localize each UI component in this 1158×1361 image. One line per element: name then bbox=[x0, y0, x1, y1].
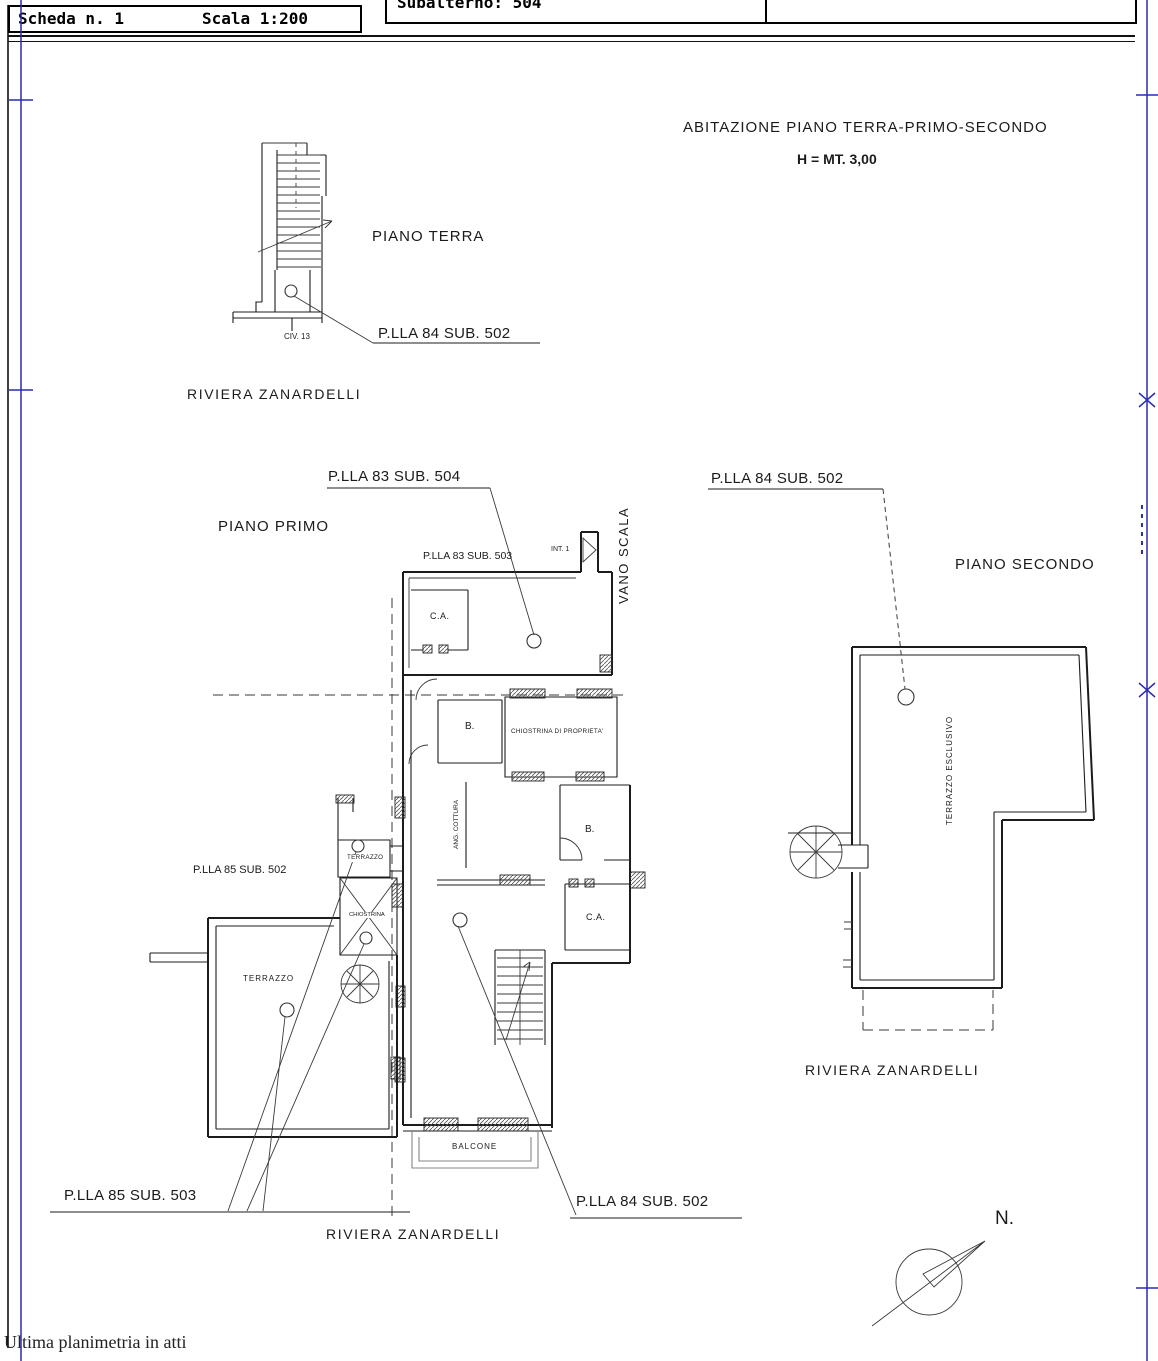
header-subalterno-box: Subalterno: 504 bbox=[385, 0, 767, 24]
parcel-85-503-label: P.LLA 85 SUB. 503 bbox=[64, 1188, 196, 1205]
room-ca-top-label: C.A. bbox=[430, 612, 450, 622]
interior-stair bbox=[495, 950, 545, 1045]
subalterno-label: Subalterno: 504 bbox=[397, 0, 765, 12]
parcel-marker-secondo bbox=[898, 689, 914, 705]
room-chiostrina-label: CHIOSTRINA bbox=[348, 912, 386, 918]
north-label: N. bbox=[995, 1209, 1014, 1230]
height-note: H = MT. 3,00 bbox=[797, 152, 877, 167]
footer-note: Ultima planimetria in atti bbox=[4, 1332, 186, 1353]
parcel-marker-terrazzo-small bbox=[352, 840, 364, 852]
spiral-stair-secondo bbox=[788, 826, 868, 878]
piano-secondo-title: PIANO SECONDO bbox=[955, 557, 1095, 574]
room-chiostrina-proprieta-label: CHIOSTRINA DI PROPRIETA' bbox=[511, 729, 604, 736]
north-arrow-icon bbox=[872, 1241, 985, 1326]
piano-secondo-drawing bbox=[788, 647, 1094, 1030]
numero-label: N.5055 bbox=[1048, 0, 1106, 4]
floor-plan-line-art bbox=[0, 0, 1158, 1361]
piano-terra-street-label: RIVIERA ZANARDELLI bbox=[187, 387, 361, 402]
terrazzo-esclusivo-label: TERRAZZO ESCLUSIVO bbox=[946, 716, 955, 825]
vano-scala-label: VANO SCALA bbox=[617, 507, 631, 604]
header-scheda-box: Scheda n. 1 Scala 1:200 bbox=[8, 5, 362, 33]
parcel-83-503-label: P.LLA 83 SUB. 503 bbox=[423, 551, 512, 563]
piano-primo-title: PIANO PRIMO bbox=[218, 519, 329, 536]
parcel-marker-504 bbox=[527, 634, 541, 648]
header-provincia-box: Prov. Roma N.5055 bbox=[765, 0, 1137, 24]
room-ang-cottura-label: ANG. COTTURA bbox=[453, 800, 460, 849]
room-terrazzo-small-label: TERRAZZO bbox=[346, 855, 384, 862]
room-ca-right-label: C.A. bbox=[586, 913, 606, 923]
piano-terra-drawing bbox=[233, 143, 332, 331]
leader-lines bbox=[50, 296, 905, 1218]
provincia-label: Prov. Roma bbox=[800, 0, 896, 4]
room-b-top-label: B. bbox=[465, 721, 474, 732]
parcel-marker-84-502 bbox=[453, 913, 467, 927]
parcel-83-504-label: P.LLA 83 SUB. 504 bbox=[328, 469, 460, 486]
parcel-secondo-label: P.LLA 84 SUB. 502 bbox=[711, 471, 843, 488]
main-title: ABITAZIONE PIANO TERRA-PRIMO-SECONDO bbox=[683, 120, 1048, 137]
piano-terra-parcel-label: P.LLA 84 SUB. 502 bbox=[378, 326, 510, 343]
parcel-marker-terra bbox=[285, 285, 297, 297]
piano-secondo-street-label: RIVIERA ZANARDELLI bbox=[805, 1063, 979, 1078]
room-balcone-label: BALCONE bbox=[452, 1143, 497, 1152]
piano-terra-title: PIANO TERRA bbox=[372, 229, 484, 246]
civico-label: CIV. 13 bbox=[284, 333, 310, 342]
cadastral-sheet: Scheda n. 1 Scala 1:200 Subalterno: 504 … bbox=[0, 0, 1158, 1361]
parcel-marker-chiostrina bbox=[360, 932, 372, 944]
room-terrazzo-big-label: TERRAZZO bbox=[243, 975, 294, 984]
parcel-84-502-bottom-label: P.LLA 84 SUB. 502 bbox=[576, 1194, 708, 1211]
scheda-label: Scheda n. 1 bbox=[18, 10, 124, 28]
room-b-right-label: B. bbox=[585, 824, 594, 835]
piano-primo-street-label: RIVIERA ZANARDELLI bbox=[326, 1227, 500, 1242]
interno-label: INT. 1 bbox=[551, 546, 569, 554]
header-divider bbox=[8, 35, 1135, 42]
parcel-marker-terrazzo-big bbox=[280, 1003, 294, 1017]
scala-label: Scala 1:200 bbox=[202, 10, 308, 28]
parcel-85-502-label: P.LLA 85 SUB. 502 bbox=[193, 864, 286, 876]
